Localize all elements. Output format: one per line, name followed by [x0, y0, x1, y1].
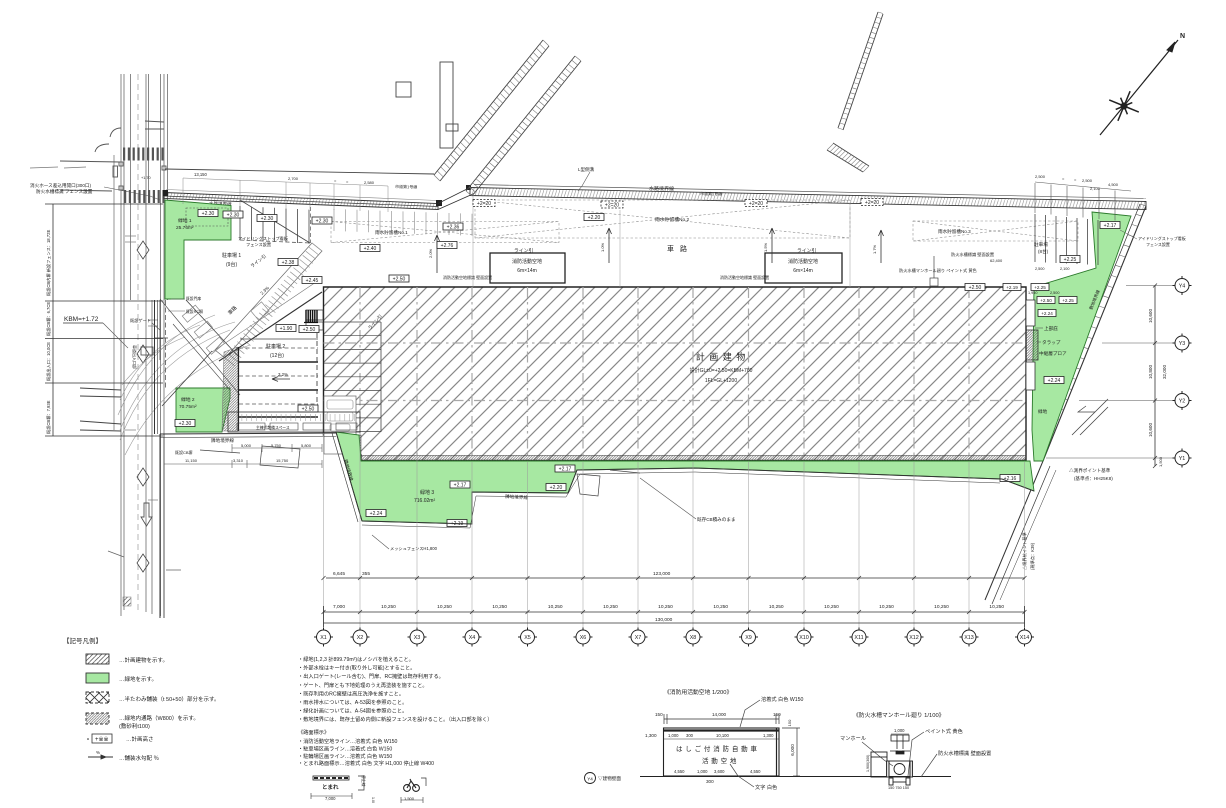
svg-text:・緑化計画については、A-54図を参照のこと。: ・緑化計画については、A-54図を参照のこと。: [298, 707, 407, 715]
svg-text:消防活動空地標識 壁面設置: 消防活動空地標識 壁面設置: [443, 274, 492, 280]
svg-text:10,250: 10,250: [492, 604, 507, 610]
svg-text:62,400: 62,400: [990, 258, 1003, 263]
svg-text:6m×14m: 6m×14m: [793, 268, 813, 274]
svg-text:《消防用活動空地 1/200》: 《消防用活動空地 1/200》: [664, 688, 732, 696]
svg-text:1,000: 1,000: [668, 733, 679, 738]
svg-text:・敷地境界には、既存土留め内側に新設フェンスを設けること。（: ・敷地境界には、既存土留め内側に新設フェンスを設けること。（出入口部を除く）: [298, 715, 492, 723]
svg-text:《路面標示》: 《路面標示》: [298, 728, 329, 736]
svg-text:《防火水槽マンホール廻り 1/100》: 《防火水槽マンホール廻り 1/100》: [853, 711, 944, 719]
svg-text:Y3: Y3: [1179, 341, 1186, 347]
svg-text:13,150: 13,150: [194, 172, 207, 177]
svg-text:+2.16: +2.16: [1004, 476, 1017, 482]
svg-text:+2.76: +2.76: [441, 243, 454, 249]
svg-text:中継層プロア: 中継層プロア: [1039, 350, 1067, 357]
svg-text:駐車場 2: 駐車場 2: [266, 343, 285, 350]
svg-text:32,000: 32,000: [1162, 365, 1167, 379]
svg-text:10,250: 10,250: [658, 604, 673, 610]
svg-text:+2.24: +2.24: [370, 511, 383, 517]
svg-text:X9: X9: [745, 635, 752, 641]
svg-text:・駐車場区画ライン…溶着式 白色 W150: ・駐車場区画ライン…溶着式 白色 W150: [298, 744, 392, 752]
svg-text:車 路: 車 路: [667, 244, 689, 253]
svg-text:+2.40: +2.40: [364, 246, 377, 252]
svg-text:1.00·30: 1.00·30: [371, 797, 375, 803]
svg-text:+※※: +※※: [95, 736, 109, 743]
svg-text:+2.50: +2.50: [393, 277, 406, 283]
svg-text:14,000: 14,000: [712, 712, 726, 717]
svg-text:緑地: 緑地: [1038, 408, 1048, 414]
svg-text:10,250: 10,250: [548, 604, 563, 610]
svg-text:X6: X6: [580, 635, 587, 641]
svg-text:6m×14m: 6m×14m: [517, 268, 537, 274]
svg-text:5,800: 5,800: [301, 443, 312, 448]
svg-text:150: 150: [773, 712, 781, 717]
svg-text:10,250: 10,250: [934, 604, 949, 610]
svg-text:・ゲート、門扉とも下地処理のうえ再塗装を施すこと。: ・ゲート、門扉とも下地処理のうえ再塗装を施すこと。: [298, 681, 428, 689]
svg-text:駐車場: 駐車場: [1034, 241, 1048, 248]
svg-text:+2.24: +2.24: [1041, 311, 1053, 316]
svg-text:+2=20: +2=20: [477, 201, 491, 207]
svg-text:11,150: 11,150: [185, 458, 198, 463]
svg-text:・駐輪場区画ライン…溶着式 白色 W150: ・駐輪場区画ライン…溶着式 白色 W150: [298, 752, 392, 760]
svg-text:緑地 2: 緑地 2: [181, 396, 195, 403]
svg-text:ペイント式 黄色: ペイント式 黄色: [925, 727, 963, 735]
svg-text:…舗装水勾配 ％: …舗装水勾配 ％: [119, 754, 160, 762]
svg-text:10,250: 10,250: [989, 604, 1004, 610]
svg-text:130,000: 130,000: [655, 617, 673, 623]
svg-text:150 750 150: 150 750 150: [888, 786, 909, 790]
svg-text:1,000: 1,000: [894, 728, 905, 733]
svg-text:+2.30: +2.30: [202, 211, 215, 217]
svg-text:+2.30: +2.30: [227, 213, 240, 219]
svg-text:Y1: Y1: [1179, 456, 1186, 462]
svg-text:上部庇: 上部庇: [1044, 325, 1058, 332]
svg-text:△測界ポイント基準: △測界ポイント基準: [1069, 467, 1111, 474]
svg-text:消防活動空地: 消防活動空地: [788, 258, 818, 265]
svg-text:・緑地(1,2,3 計899.79m²)はノシバを植えること: ・緑地(1,2,3 計899.79m²)はノシバを植えること。: [298, 655, 414, 663]
svg-text:停止線: 停止線: [361, 775, 366, 787]
svg-text:+2.30: +2.30: [179, 421, 192, 427]
svg-text:防火水槽標識 フェンス設置: 防火水槽標識 フェンス設置: [36, 188, 93, 195]
svg-text:1.7%: 1.7%: [872, 244, 877, 254]
svg-text:ライン引: ライン引: [514, 247, 533, 254]
svg-text:2.0%: 2.0%: [428, 248, 433, 258]
svg-text:(現準点：K39): (現準点：K39): [1029, 542, 1036, 570]
svg-text:X3: X3: [414, 635, 421, 641]
svg-text:X10: X10: [799, 635, 809, 641]
svg-text:X5: X5: [524, 635, 531, 641]
svg-text:…計画建物を示す。: …計画建物を示す。: [119, 656, 168, 664]
svg-text:2,580: 2,580: [364, 180, 375, 185]
svg-text:消防活動空地標識 壁面設置: 消防活動空地標識 壁面設置: [720, 274, 769, 280]
svg-text:雨水貯留槽No.1: 雨水貯留槽No.1: [375, 229, 408, 236]
svg-text:+2.25: +2.25: [1062, 298, 1074, 303]
svg-text:隣地境界線: 隣地境界線: [211, 437, 234, 444]
svg-text:X12: X12: [909, 635, 919, 641]
svg-text:+2.25: +2.25: [1064, 257, 1077, 263]
svg-text:・とまれ路面標示…溶着式 白色 文字 H1,000 停止: ・とまれ路面標示…溶着式 白色 文字 H1,000 停止線 W400: [298, 759, 434, 767]
svg-text:X1: X1: [320, 635, 327, 641]
svg-text:70.75m²: 70.75m²: [179, 404, 197, 410]
svg-text:150: 150: [655, 712, 663, 717]
svg-text:既設出入口：10,0CE: 既設出入口：10,0CE: [45, 342, 52, 381]
svg-text:+2.36: +2.36: [447, 225, 460, 231]
svg-text:…半たわみ舗装（t 50+50）部分を示す。: …半たわみ舗装（t 50+50）部分を示す。: [119, 695, 219, 703]
svg-text:1.5%: 1.5%: [763, 242, 768, 252]
svg-text:フェンス設置: フェンス設置: [1146, 241, 1170, 247]
svg-text:10,100: 10,100: [716, 733, 729, 738]
svg-text:アイドリングストップ看板: アイドリングストップ看板: [1138, 235, 1186, 241]
svg-text:1,300: 1,300: [763, 733, 774, 738]
svg-text:雨水貯留槽No.2: 雨水貯留槽No.2: [655, 216, 689, 223]
svg-text:10,250: 10,250: [381, 604, 396, 610]
svg-text:防火水槽標識 壁面設置: 防火水槽標識 壁面設置: [951, 251, 994, 258]
svg-text:X8: X8: [690, 635, 697, 641]
svg-text:+2.45: +2.45: [306, 278, 319, 284]
svg-text:10,250: 10,250: [824, 604, 839, 610]
svg-text:355: 355: [362, 571, 370, 577]
svg-text:既存CB積みのまま: 既存CB積みのまま: [697, 516, 736, 523]
svg-text:Y2: Y2: [1179, 399, 1186, 405]
svg-text:7,000: 7,000: [325, 796, 336, 801]
svg-text:△境界杭イント基準: △境界杭イント基準: [1021, 532, 1028, 570]
svg-text:15,750: 15,750: [276, 458, 289, 463]
svg-text:+2.50: +2.50: [1040, 298, 1052, 303]
svg-text:7,000: 7,000: [333, 604, 345, 610]
svg-text:駐車場 1: 駐車場 1: [222, 252, 241, 259]
svg-text:既設CB塀：6,7CE: 既設CB塀：6,7CE: [45, 302, 52, 336]
svg-text:X7: X7: [635, 635, 642, 641]
svg-text:+2.30: +2.30: [261, 216, 274, 222]
svg-text:+2.25: +2.25: [1034, 285, 1046, 290]
svg-text:+2.17: +2.17: [559, 467, 572, 473]
svg-text:は し ご 付 消 防 自 動 車: は し ご 付 消 防 自 動 車: [676, 744, 757, 753]
svg-text:1,300: 1,300: [645, 733, 657, 738]
svg-text:3,600: 3,600: [714, 769, 725, 774]
svg-text:+2.17: +2.17: [1104, 223, 1117, 229]
svg-text:6,645: 6,645: [333, 571, 345, 577]
svg-text:L型側溝: L型側溝: [578, 166, 595, 173]
svg-text:+2.20: +2.20: [550, 485, 563, 491]
svg-text:+2.50: +2.50: [969, 285, 982, 291]
svg-text:設計GL±0=+2.50=KBM+780: 設計GL±0=+2.50=KBM+780: [690, 367, 753, 374]
svg-text:+2.30: +2.30: [316, 219, 329, 225]
svg-text:10,250: 10,250: [603, 604, 618, 610]
svg-text:1,500: 1,500: [1158, 456, 1163, 467]
svg-text:主棟式散備スペース: 主棟式散備スペース: [256, 425, 290, 430]
svg-text:アイドリングストップ看板: アイドリングストップ看板: [238, 235, 289, 242]
svg-text:水路境界線: 水路境界線: [649, 185, 674, 192]
svg-text:1.0%: 1.0%: [600, 242, 605, 252]
svg-text:▽建物壁面: ▽建物壁面: [598, 775, 621, 782]
svg-text:・外部水栓はキー付き(取り外し可能)とすること。: ・外部水栓はキー付き(取り外し可能)とすること。: [298, 664, 415, 672]
svg-text:+2=20: +2=20: [749, 201, 763, 207]
svg-text:X4: X4: [469, 635, 476, 641]
svg-text:(12台): (12台): [270, 352, 284, 359]
svg-text:4,500: 4,500: [1108, 182, 1119, 187]
svg-text:+1.70: +1.70: [141, 176, 151, 180]
svg-text:6,000: 6,000: [790, 744, 795, 756]
svg-text:+2.20: +2.20: [588, 215, 601, 221]
svg-text:溶着式 白色 W150: 溶着式 白色 W150: [761, 695, 803, 703]
svg-text:5,750: 5,750: [271, 443, 282, 448]
svg-text:2,500: 2,500: [1082, 178, 1093, 183]
svg-text:10,250: 10,250: [437, 604, 452, 610]
svg-text:防火水槽標識 壁面設置: 防火水槽標識 壁面設置: [938, 749, 991, 757]
svg-text:とまれ: とまれ: [322, 783, 339, 791]
svg-text:+2.24: +2.24: [1048, 378, 1061, 384]
svg-text:2,100: 2,100: [1060, 267, 1070, 271]
svg-text:消火ホース差込用開口(300口): 消火ホース差込用開口(300口): [30, 182, 91, 189]
svg-text:・消防活動空地ライン…溶着式 白色 W150: ・消防活動空地ライン…溶着式 白色 W150: [298, 737, 398, 745]
svg-text:2,500: 2,500: [1035, 174, 1046, 179]
svg-text:既設CB塀：7,93E: 既設CB塀：7,93E: [45, 400, 52, 434]
svg-text:・出入口ゲート(レール含む)、門扉、RC擁壁は既存利用する。: ・出入口ゲート(レール含む)、門扉、RC擁壁は既存利用する。: [298, 672, 444, 680]
svg-text:10,250: 10,250: [713, 604, 728, 610]
svg-text:X13: X13: [964, 635, 974, 641]
svg-text:1,950: 1,950: [1028, 291, 1038, 295]
svg-text:5,000: 5,000: [241, 443, 252, 448]
svg-text:Y4: Y4: [1179, 284, 1186, 290]
svg-text:・既存利用のRC擁壁は高圧洗浄を施すこと。: ・既存利用のRC擁壁は高圧洗浄を施すこと。: [298, 689, 404, 697]
svg-text:緑地 3: 緑地 3: [420, 489, 434, 496]
svg-text:既設CB内塀 新設フェンス：18,72E: 既設CB内塀 新設フェンス：18,72E: [45, 230, 52, 296]
svg-text:2,700: 2,700: [288, 176, 299, 181]
svg-text:フェンス設置: フェンス設置: [246, 241, 271, 248]
svg-text:10,600: 10,600: [1148, 423, 1153, 437]
svg-text:市道第1号線: 市道第1号線: [700, 190, 722, 196]
svg-text:…計画高さ: …計画高さ: [126, 735, 154, 743]
svg-text:(敷砂利t100): (敷砂利t100): [119, 722, 150, 730]
svg-text:(8台): (8台): [1038, 248, 1049, 255]
svg-text:4,550: 4,550: [750, 769, 761, 774]
svg-text:マンホール: マンホール: [840, 735, 866, 742]
svg-text:+2.19: +2.19: [1006, 285, 1018, 290]
svg-text:2,500: 2,500: [1050, 291, 1060, 295]
svg-text:文字 白色: 文字 白色: [755, 783, 777, 791]
svg-text:・雨水排水については、A-53図を参照のこと。: ・雨水排水については、A-53図を参照のこと。: [298, 698, 407, 706]
svg-text:消防活動空地: 消防活動空地: [512, 258, 542, 265]
svg-text:10,250: 10,250: [879, 604, 894, 610]
svg-text:300: 300: [706, 779, 714, 784]
svg-text:%: %: [96, 750, 100, 755]
svg-text:+2.50: +2.50: [303, 327, 316, 333]
svg-text:150: 150: [787, 719, 792, 726]
svg-text:雨水貯留槽No.3: 雨水貯留槽No.3: [938, 228, 971, 235]
svg-text:300: 300: [686, 733, 694, 738]
svg-text:123,000: 123,000: [653, 571, 671, 577]
svg-text:市道第1号線: 市道第1号線: [395, 183, 417, 189]
svg-text:X2: X2: [357, 635, 364, 641]
svg-text:4,550: 4,550: [674, 769, 685, 774]
svg-text:【記号凡例】: 【記号凡例】: [63, 636, 102, 645]
svg-text:ライン引: ライン引: [797, 247, 816, 254]
svg-text:1,900(300): 1,900(300): [866, 755, 870, 772]
svg-text:Y4: Y4: [587, 777, 593, 782]
svg-text:3,310: 3,310: [233, 458, 244, 463]
svg-text:10,800: 10,800: [1148, 365, 1153, 379]
svg-text:既設CB塀: 既設CB塀: [175, 449, 193, 455]
svg-text:既設RC塀: 既設RC塀: [186, 309, 203, 314]
svg-text:KBM=+1.72: KBM=+1.72: [64, 316, 99, 323]
svg-text:既設ゲート: 既設ゲート: [130, 317, 151, 324]
svg-text:+2.17: +2.17: [454, 483, 467, 489]
svg-text:10,600: 10,600: [1148, 309, 1153, 323]
svg-text:タラップ: タラップ: [1042, 339, 1061, 346]
svg-text:1FL=GL+1200: 1FL=GL+1200: [705, 378, 737, 384]
svg-text:+2=20: +2=20: [605, 203, 619, 209]
svg-text:緑地 1: 緑地 1: [178, 217, 192, 224]
svg-text:既設門扉: 既設門扉: [186, 296, 201, 301]
svg-text:車道出入口部: 車道出入口部: [132, 345, 138, 369]
svg-text:X11: X11: [854, 635, 863, 641]
svg-text:防火水槽マンホール廻り ペイント式 黄色: 防火水槽マンホール廻り ペイント式 黄色: [899, 267, 978, 274]
svg-text:N: N: [1180, 33, 1185, 40]
svg-text:1,000: 1,000: [697, 769, 708, 774]
svg-text:(基準点：HH25K8): (基準点：HH25K8): [1074, 475, 1113, 482]
svg-text:X14: X14: [1020, 635, 1030, 641]
svg-text:10,250: 10,250: [769, 604, 784, 610]
svg-text:2,500: 2,500: [1035, 267, 1045, 271]
svg-text:+1.90: +1.90: [280, 326, 293, 332]
svg-text:+2=20: +2=20: [865, 200, 879, 206]
svg-text:3.2%: 3.2%: [278, 372, 288, 377]
svg-text:…緑地内通路（W800）を示す。: …緑地内通路（W800）を示す。: [119, 714, 199, 722]
svg-text:活 動 空 地: 活 動 空 地: [702, 756, 737, 765]
svg-text:(9台): (9台): [226, 261, 237, 268]
svg-text:25.76m²: 25.76m²: [176, 225, 194, 231]
svg-text:+2.38: +2.38: [282, 260, 295, 266]
svg-text:…緑地を示す。: …緑地を示す。: [119, 675, 157, 683]
svg-text:計 画 建 物: 計 画 建 物: [696, 351, 747, 362]
